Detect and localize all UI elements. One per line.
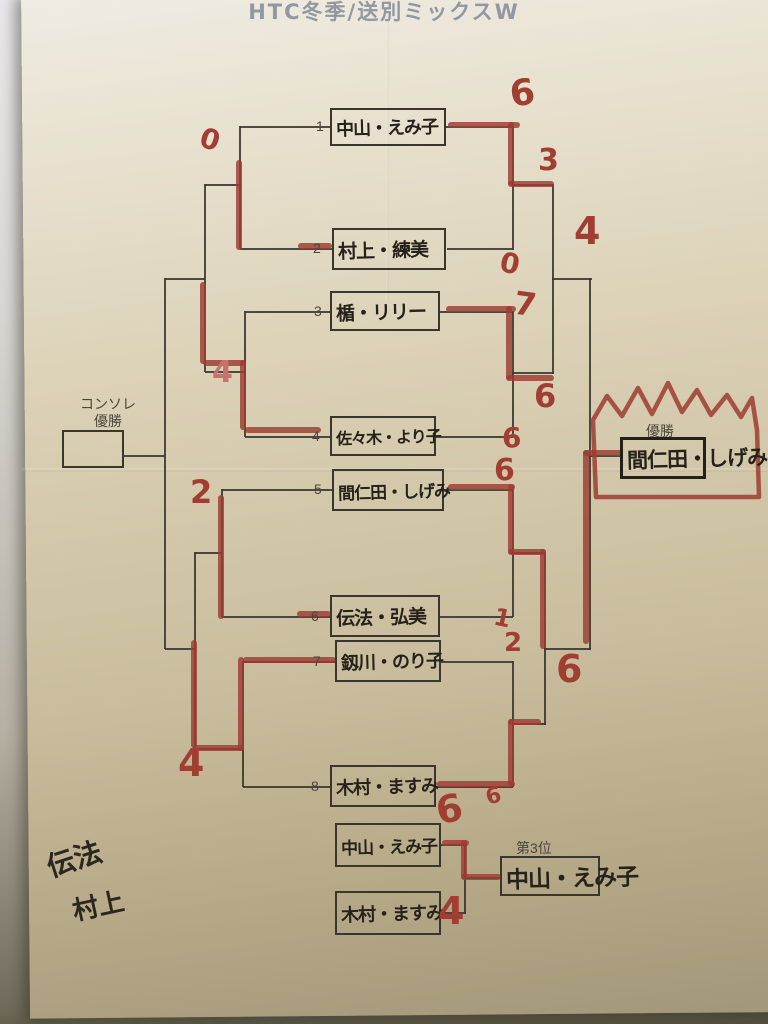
console-label-line2: 優勝 — [94, 411, 122, 431]
winner-path-marker — [508, 719, 514, 786]
winner-path-marker — [218, 495, 224, 619]
player-box-7: 釼川・のり子 — [335, 640, 441, 682]
seed-number-8: 8 — [311, 778, 319, 794]
score-m1-winner: 6 — [508, 74, 538, 113]
winner-path-marker — [508, 122, 514, 186]
player-name-8: 木村・ますみ — [336, 772, 439, 801]
score-console-c: 2 — [190, 476, 212, 508]
score-final-loser: 4 — [574, 212, 600, 250]
winner-path-marker — [245, 427, 321, 433]
score-m4-loser: 2 — [504, 630, 522, 656]
seed-number-2: 2 — [313, 240, 321, 256]
score-console-d: 4 — [178, 744, 204, 782]
winner-path-marker — [243, 657, 336, 663]
player-box-8: 木村・ますみ — [330, 765, 436, 807]
third-place-bottom-name: 木村・ますみ — [341, 899, 444, 928]
player-box-2: 村上・練美 — [332, 228, 446, 270]
player-name-1: 中山・えみ子 — [336, 113, 439, 142]
bracket-line — [164, 278, 166, 649]
player-name-2: 村上・練美 — [338, 234, 429, 263]
score-m2-loser: 6 — [502, 424, 521, 452]
third-place-label: 第3位 — [516, 838, 552, 858]
player-box-1: 中山・えみ子 — [330, 108, 446, 146]
score-sf1-winner: 6 — [534, 380, 556, 412]
player-box-4: 佐々木・より子 — [330, 416, 436, 456]
player-box-5: 間仁田・しげみ — [332, 469, 444, 511]
winner-path-marker — [238, 657, 244, 751]
winner-path-marker — [540, 549, 546, 649]
seed-number-3: 3 — [314, 303, 322, 319]
third-place-winner-name: 中山・えみ子 — [506, 857, 639, 894]
third-place-result-box: 中山・えみ子 — [500, 856, 600, 896]
player-name-7: 釼川・のり子 — [341, 647, 444, 676]
tournament-title: HTC冬季/送別ミックスW — [0, 0, 768, 26]
console-winner-box — [62, 430, 124, 468]
seed-number-7: 7 — [313, 653, 321, 669]
score-console-b: 4 — [212, 358, 233, 388]
bracket-line — [512, 311, 514, 437]
winner-path-marker — [236, 160, 242, 250]
score-m2-winner: 7 — [512, 287, 539, 322]
player-box-6: 伝法・弘美 — [330, 595, 440, 637]
winner-path-marker — [461, 874, 501, 880]
winner-path-marker — [508, 719, 541, 725]
score-m3-winner: 6 — [494, 456, 515, 486]
third-place-top-box: 中山・えみ子 — [335, 823, 441, 867]
winner-path-marker — [191, 640, 197, 748]
player-name-5: 間仁田・しげみ — [338, 476, 451, 504]
bracket-line — [440, 661, 513, 663]
score-sf1-loser: 3 — [538, 146, 559, 176]
winner-path-marker — [508, 181, 554, 187]
winner-path-marker — [240, 360, 246, 430]
winner-path-marker — [508, 484, 514, 554]
seed-number-5: 5 — [314, 481, 322, 497]
winner-path-marker — [200, 282, 206, 364]
third-place-top-name: 中山・えみ子 — [341, 831, 438, 859]
player-name-6: 伝法・弘美 — [336, 601, 427, 630]
bracket-line — [124, 455, 165, 457]
seed-number-1: 1 — [316, 118, 324, 134]
score-3rd-bottom: 4 — [438, 892, 464, 930]
player-box-3: 楯・リリー — [330, 291, 440, 331]
score-final-winner: 6 — [556, 650, 582, 688]
third-place-bottom-box: 木村・ますみ — [335, 891, 441, 935]
champion-name: 間仁田・しげみ — [627, 441, 768, 475]
seed-number-6: 6 — [311, 608, 319, 624]
bracket-line — [552, 278, 592, 280]
seed-number-4: 4 — [312, 428, 320, 444]
bracket-line — [165, 278, 205, 280]
tournament-bracket-photo: HTC冬季/送別ミックスW 1 2 3 4 5 6 7 8 中山・えみ子 村上・… — [0, 0, 768, 1024]
champion-box: 間仁田・しげみ — [620, 437, 706, 479]
player-name-4: 佐々木・より子 — [336, 423, 441, 450]
bracket-line — [512, 372, 554, 374]
player-name-3: 楯・リリー — [336, 296, 427, 325]
